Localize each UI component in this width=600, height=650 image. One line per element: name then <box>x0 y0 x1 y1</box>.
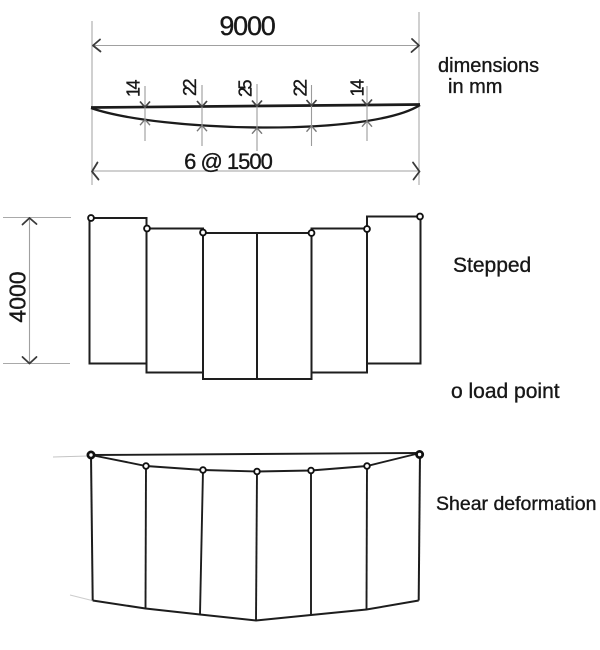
svg-text:Shear deformation: Shear deformation <box>436 493 596 515</box>
svg-text:in mm: in mm <box>448 76 502 98</box>
svg-text:9000: 9000 <box>219 11 274 41</box>
svg-text:Stepped: Stepped <box>453 254 531 277</box>
svg-text:o load point: o load point <box>451 380 560 403</box>
svg-text:14: 14 <box>348 79 368 97</box>
svg-text:4000: 4000 <box>5 271 31 322</box>
svg-text:6 @ 1500: 6 @ 1500 <box>184 149 272 174</box>
svg-text:22: 22 <box>180 79 200 97</box>
svg-text:25: 25 <box>236 80 256 98</box>
svg-text:14: 14 <box>124 80 144 98</box>
svg-text:dimensions: dimensions <box>438 55 539 77</box>
svg-text:22: 22 <box>291 79 311 97</box>
